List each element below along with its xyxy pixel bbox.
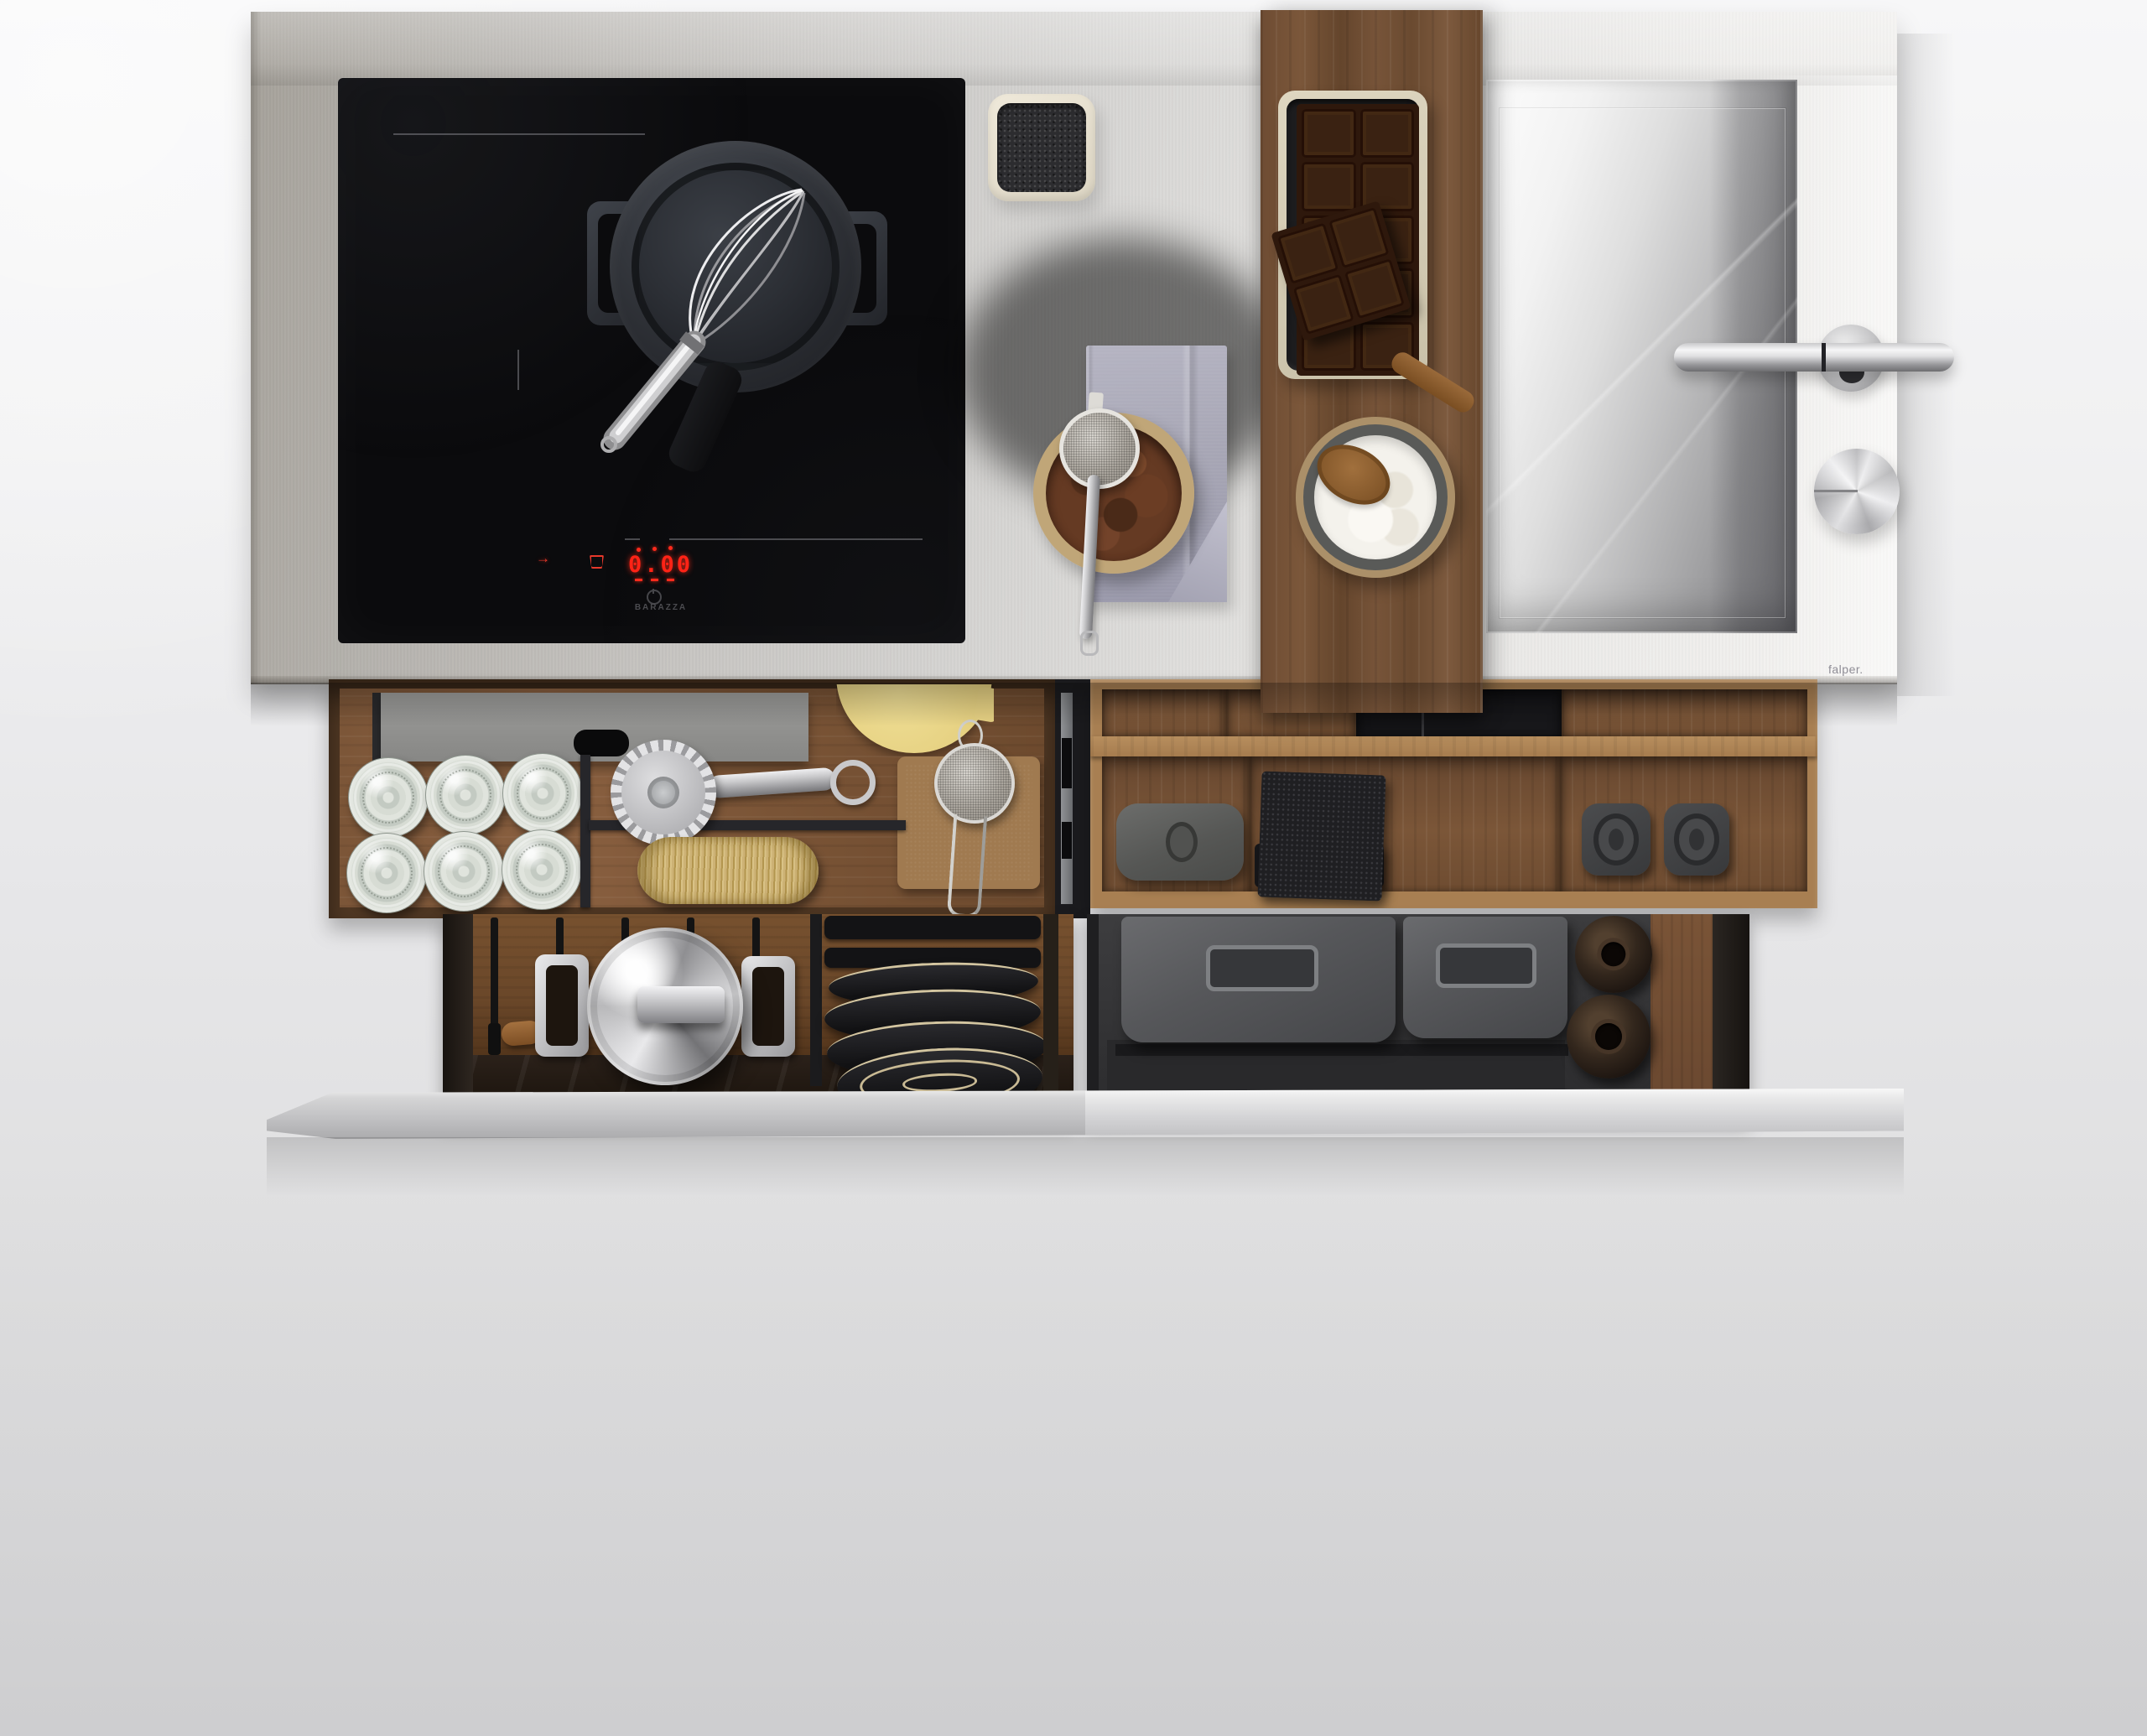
chocolate-square — [1277, 222, 1339, 283]
chocolate-tray — [1278, 91, 1427, 379]
chocolate-square — [1302, 109, 1356, 158]
metal-bin — [1403, 917, 1567, 1038]
container-knob — [1166, 822, 1198, 862]
glass-jar — [424, 831, 504, 912]
zone-dot — [652, 547, 657, 551]
spout-ring — [1822, 343, 1826, 372]
pot-side-handle — [535, 954, 589, 1057]
drawer-divider-vertical — [580, 755, 590, 907]
drawer-upper-right — [1090, 679, 1817, 908]
plate-rack-wall — [1043, 914, 1058, 1092]
zone-dash — [651, 579, 658, 581]
countertop-left-edge — [251, 12, 261, 684]
chocolate-square — [1292, 273, 1354, 335]
bin-rail — [1115, 1044, 1568, 1056]
counter-brand-label: falper. — [1828, 663, 1864, 676]
charcoal-sponge — [997, 103, 1086, 192]
drawer-lower-left — [443, 914, 1073, 1120]
organizer-cell — [1562, 689, 1807, 736]
pot-detection-icon — [590, 555, 604, 569]
lid-handle — [637, 986, 725, 1023]
zone-dash — [635, 579, 642, 581]
organizer-rail — [1090, 736, 1817, 756]
spice-canister — [1664, 803, 1729, 876]
plate-rack-slat — [824, 916, 1041, 939]
strainer-mesh-head — [934, 743, 1015, 824]
countertop-back-edge — [251, 12, 1897, 86]
gap-hardware — [1062, 738, 1072, 788]
cooktop-display: 0.00 — [628, 557, 693, 574]
cooktop-brand-label: BARAZZA — [615, 603, 707, 612]
cooktop-zone-line — [625, 538, 640, 540]
faucet-control-knob — [1814, 449, 1900, 534]
zone-dot — [668, 546, 673, 550]
zone-dash — [667, 579, 674, 581]
chocolate-square — [1360, 109, 1415, 158]
kitchen-island-scene: → 0.00 BARAZZA — [0, 0, 2147, 1736]
gap-rail — [1061, 693, 1073, 904]
bin-handle-slot — [1206, 945, 1318, 991]
handle-cutout — [546, 965, 578, 1046]
organizer-cell — [1102, 689, 1226, 736]
rubber-container — [1116, 803, 1244, 881]
drawer-lower-right — [1087, 914, 1749, 1120]
chocolate-square — [1302, 162, 1356, 211]
glass-jar — [502, 829, 582, 910]
glass-jar — [348, 757, 429, 838]
glass-jar — [346, 833, 427, 913]
shelf-edge — [267, 1089, 1904, 1139]
drawer-side-wall — [443, 914, 473, 1120]
cutter-hub — [647, 777, 679, 808]
gap-hardware — [1062, 822, 1072, 859]
drawer-side-wall — [1087, 914, 1099, 1120]
cooktop-zone-line — [517, 350, 519, 390]
drawer-upper-left — [329, 679, 1055, 918]
panel-handle-slot — [574, 730, 629, 756]
canister-knob — [1689, 829, 1704, 850]
knob-mark — [1814, 490, 1858, 492]
chocolate-square — [1328, 207, 1390, 268]
chocolate-square — [1344, 258, 1405, 320]
wall-shade — [0, 1149, 2147, 1736]
sponge-dish — [988, 94, 1095, 201]
metal-bin — [1121, 917, 1396, 1042]
handle-cutout — [752, 967, 784, 1046]
whisk — [587, 168, 830, 453]
glass-jar — [502, 753, 583, 834]
twine-spool — [637, 837, 819, 904]
strainer-wire-handle — [947, 814, 987, 918]
pasta-cutter-ring — [830, 760, 876, 805]
plate-rack-wall — [810, 914, 822, 1086]
panel-edge — [372, 693, 381, 761]
cooktop-arrow-indicator: → — [536, 553, 550, 564]
bin-handle-slot — [1436, 943, 1536, 988]
oil-jug — [1567, 995, 1651, 1079]
cooktop-zone-line — [393, 133, 645, 135]
woven-mat-stack — [1257, 771, 1385, 901]
walnut-panel — [1651, 914, 1713, 1109]
drawer-gap — [1055, 679, 1090, 918]
strainer-handle-loop — [1080, 631, 1099, 656]
canister-knob — [1609, 829, 1624, 850]
induction-cooktop: → 0.00 BARAZZA — [338, 78, 965, 643]
pasta-cutter-wheel — [611, 740, 716, 845]
cocoa-strainer-head — [1059, 408, 1140, 489]
peg-base — [488, 1023, 501, 1055]
cooktop-zone-line — [669, 538, 923, 540]
glass-jar — [425, 755, 506, 835]
pot-side-handle — [741, 956, 795, 1057]
drawer-side-wall — [1713, 914, 1749, 1112]
oil-jug — [1575, 916, 1652, 993]
spice-canister — [1582, 803, 1651, 876]
faucet-lever-spout — [1674, 343, 1954, 372]
shelf-highlight — [1085, 1089, 1904, 1139]
